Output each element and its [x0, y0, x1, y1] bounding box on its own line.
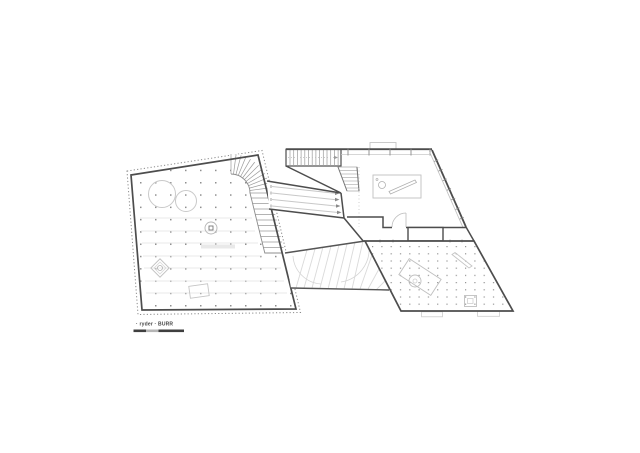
studio-dot-grid: [365, 241, 513, 311]
scale-bar: [134, 330, 185, 333]
title-block: · ryder · BURR: [134, 322, 185, 333]
exterior-step-left: [422, 312, 443, 317]
left-hall-room: [127, 151, 301, 315]
exterior-step-right: [478, 311, 500, 316]
floor-plan-drawing: · ryder · BURR: [0, 0, 640, 453]
vestibule-notch: [408, 228, 443, 242]
floor-band: [201, 245, 235, 249]
upper-straight-stair: [286, 149, 341, 166]
studio-room: [365, 240, 513, 317]
floor-plan-canvas: · ryder · BURR: [0, 0, 640, 453]
column-square: [209, 226, 213, 230]
branding-label: · ryder · BURR: [136, 322, 173, 328]
